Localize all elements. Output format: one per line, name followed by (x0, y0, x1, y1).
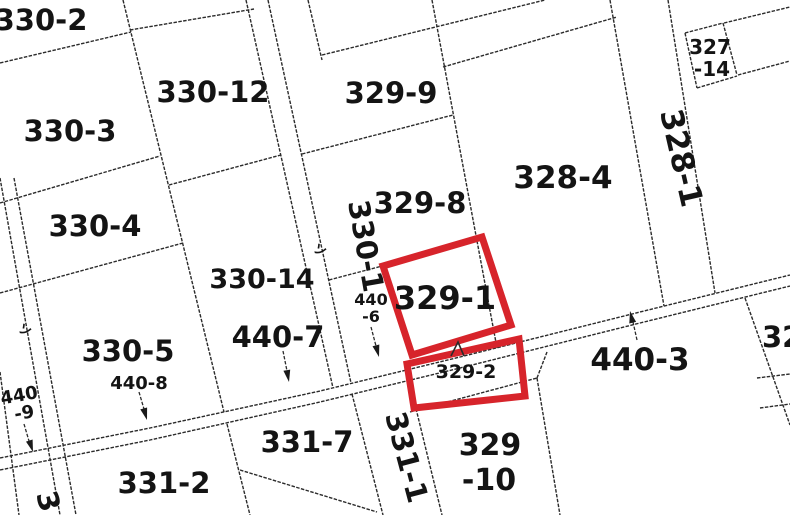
road-label-440-9-line2: -9 (13, 401, 36, 425)
parcel-label-328-4: 328-4 (513, 160, 612, 196)
parcel-label-327-14-line2: -14 (694, 57, 730, 81)
parcel-label-331-2: 331-2 (118, 466, 211, 500)
arrow-440-7 (283, 351, 290, 382)
arrow-head (629, 311, 636, 324)
parcel-label-329-9: 329-9 (345, 76, 438, 110)
arrow-head (26, 440, 33, 453)
parcel-label-329-2: 329-2 (436, 361, 497, 383)
arrow-440-6 (371, 327, 379, 357)
parcel-label-330-5: 330-5 (82, 334, 175, 368)
parcel-label-330-4: 330-4 (49, 209, 142, 243)
arrow-440-8 (139, 392, 147, 420)
parcel-label-330-12: 330-12 (157, 75, 270, 109)
parcel-label-329-8: 329-8 (374, 186, 467, 220)
parcel-label-331-1-rotated: 331-1 (378, 408, 435, 506)
cadastral-map[interactable]: 330-2 330-12 329-9 327 -14 328-4 328-1 3… (0, 0, 790, 515)
road-label-440-8: 440-8 (110, 373, 168, 394)
parcel-label-330-3: 330-3 (24, 114, 117, 148)
arrow-head (140, 408, 147, 421)
parcel-label-partial-3-rotated: 3 (29, 487, 67, 515)
arrow-440-9 (24, 424, 33, 452)
road-label-440-9-group: 440 -9 (0, 382, 43, 427)
parcel-label-329-10-line1: 329 (459, 428, 522, 463)
road-label-440-6-line2: -6 (362, 307, 380, 326)
road-tick-mark-left: ソ (14, 321, 33, 341)
parcel-label-330-2: 330-2 (0, 3, 87, 37)
road-label-440-7: 440-7 (232, 320, 325, 354)
parcel-label-330-14: 330-14 (209, 264, 314, 295)
parcel-label-329-1: 329-1 (394, 279, 496, 317)
road-label-440-3: 440-3 (590, 342, 689, 378)
arrow-head (283, 370, 290, 382)
arrow-head (373, 345, 380, 358)
map-canvas[interactable]: 330-2 330-12 329-9 327 -14 328-4 328-1 3… (0, 0, 790, 515)
road-tick-mark-center: ソ (309, 241, 328, 261)
parcel-label-327-14-line1: 327 (689, 35, 731, 59)
parcel-label-328-1-rotated: 328-1 (652, 106, 709, 211)
parcel-label-329-10-line2: -10 (462, 463, 516, 498)
parcel-label-331-7: 331-7 (261, 425, 354, 459)
parcel-label-partial-32: 32 (762, 320, 790, 354)
